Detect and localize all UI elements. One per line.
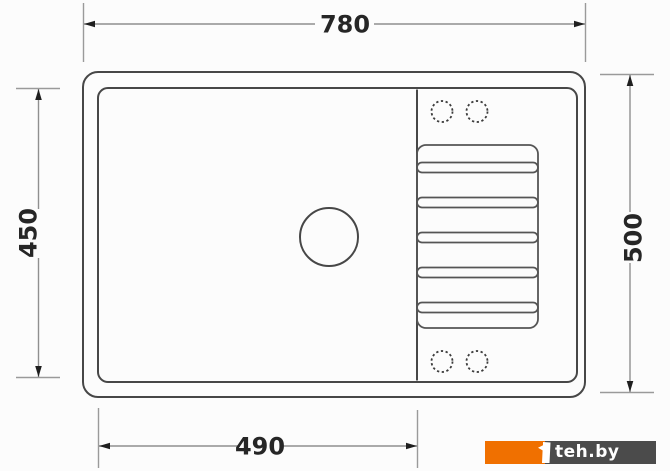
dimension-label-bottom: 490 <box>235 433 285 461</box>
dimension-left-height: 450 <box>15 89 61 378</box>
drainboard-groove <box>417 233 538 243</box>
arrow-left-icon <box>84 21 95 28</box>
arrow-down-icon <box>35 366 42 377</box>
dimension-right-height: 500 <box>600 75 654 393</box>
faucet-holes <box>432 101 488 372</box>
arrow-right-icon <box>574 21 585 28</box>
arrow-down-icon <box>627 381 634 392</box>
watermark-logo-icon <box>538 442 552 463</box>
arrow-right-icon <box>406 443 417 450</box>
arrow-up-icon <box>35 89 42 100</box>
dimension-label-right: 500 <box>620 213 648 263</box>
drainboard-groove <box>417 198 538 208</box>
drainboard-groove <box>417 268 538 278</box>
sink-technical-drawing: 780 450 500 <box>0 0 670 471</box>
arrow-up-icon <box>627 75 634 86</box>
drainboard-groove <box>417 163 538 173</box>
dimension-bottom-width: 490 <box>99 408 418 468</box>
faucet-hole-top-left <box>432 101 453 122</box>
drainboard-groove <box>417 303 538 313</box>
dimension-label-left: 450 <box>15 208 43 258</box>
sink-body <box>83 72 585 397</box>
watermark-bar: teh.by <box>545 441 656 464</box>
arrow-left-icon <box>99 443 110 450</box>
dimension-top-width: 780 <box>84 3 586 62</box>
drainboard <box>417 145 538 328</box>
faucet-hole-bottom-left <box>432 351 453 372</box>
sink-outer-edge <box>83 72 585 397</box>
sink-inner-rim <box>98 88 577 382</box>
dimension-label-top: 780 <box>320 11 370 39</box>
watermark-text: teh.by <box>555 444 619 461</box>
drain-hole <box>300 208 358 266</box>
watermark-orange-block <box>485 441 545 464</box>
faucet-hole-top-right <box>467 101 488 122</box>
watermark: teh.by <box>485 441 656 464</box>
faucet-hole-bottom-right <box>467 351 488 372</box>
drawing-canvas: 780 450 500 <box>0 0 670 471</box>
